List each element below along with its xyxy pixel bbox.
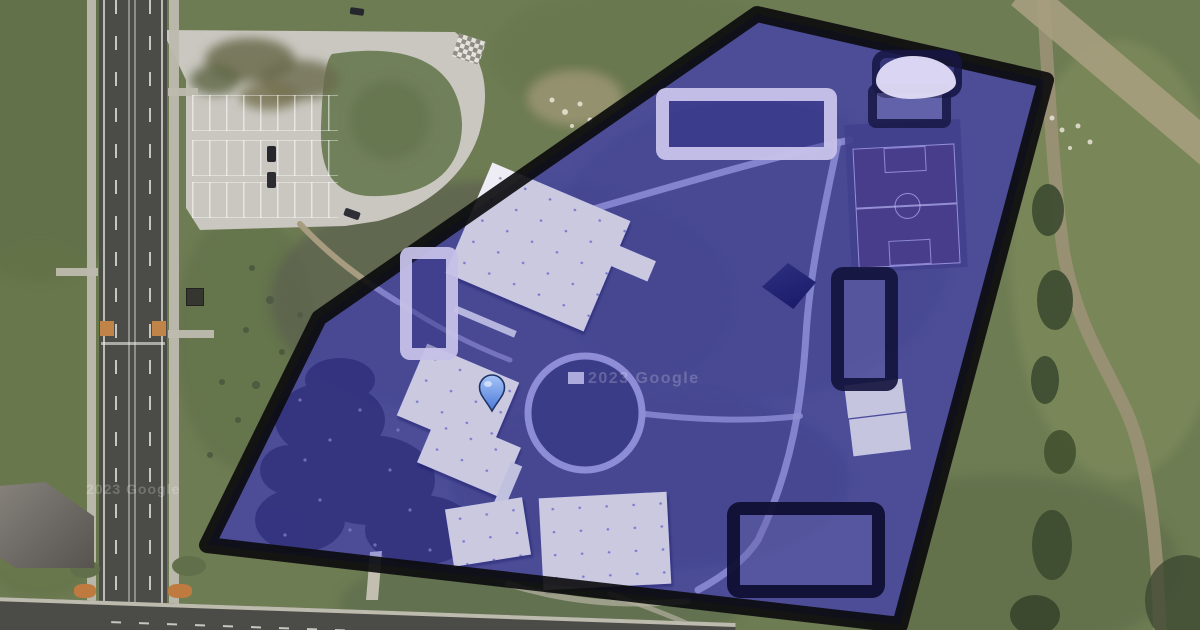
map-watermark: 2023 Google (86, 481, 180, 497)
map-pin[interactable] (480, 375, 505, 411)
pin-layer (0, 0, 1200, 630)
map-watermark: 2023 Google (588, 370, 700, 388)
satellite-map[interactable]: 2023 Google2023 Google (0, 0, 1200, 630)
